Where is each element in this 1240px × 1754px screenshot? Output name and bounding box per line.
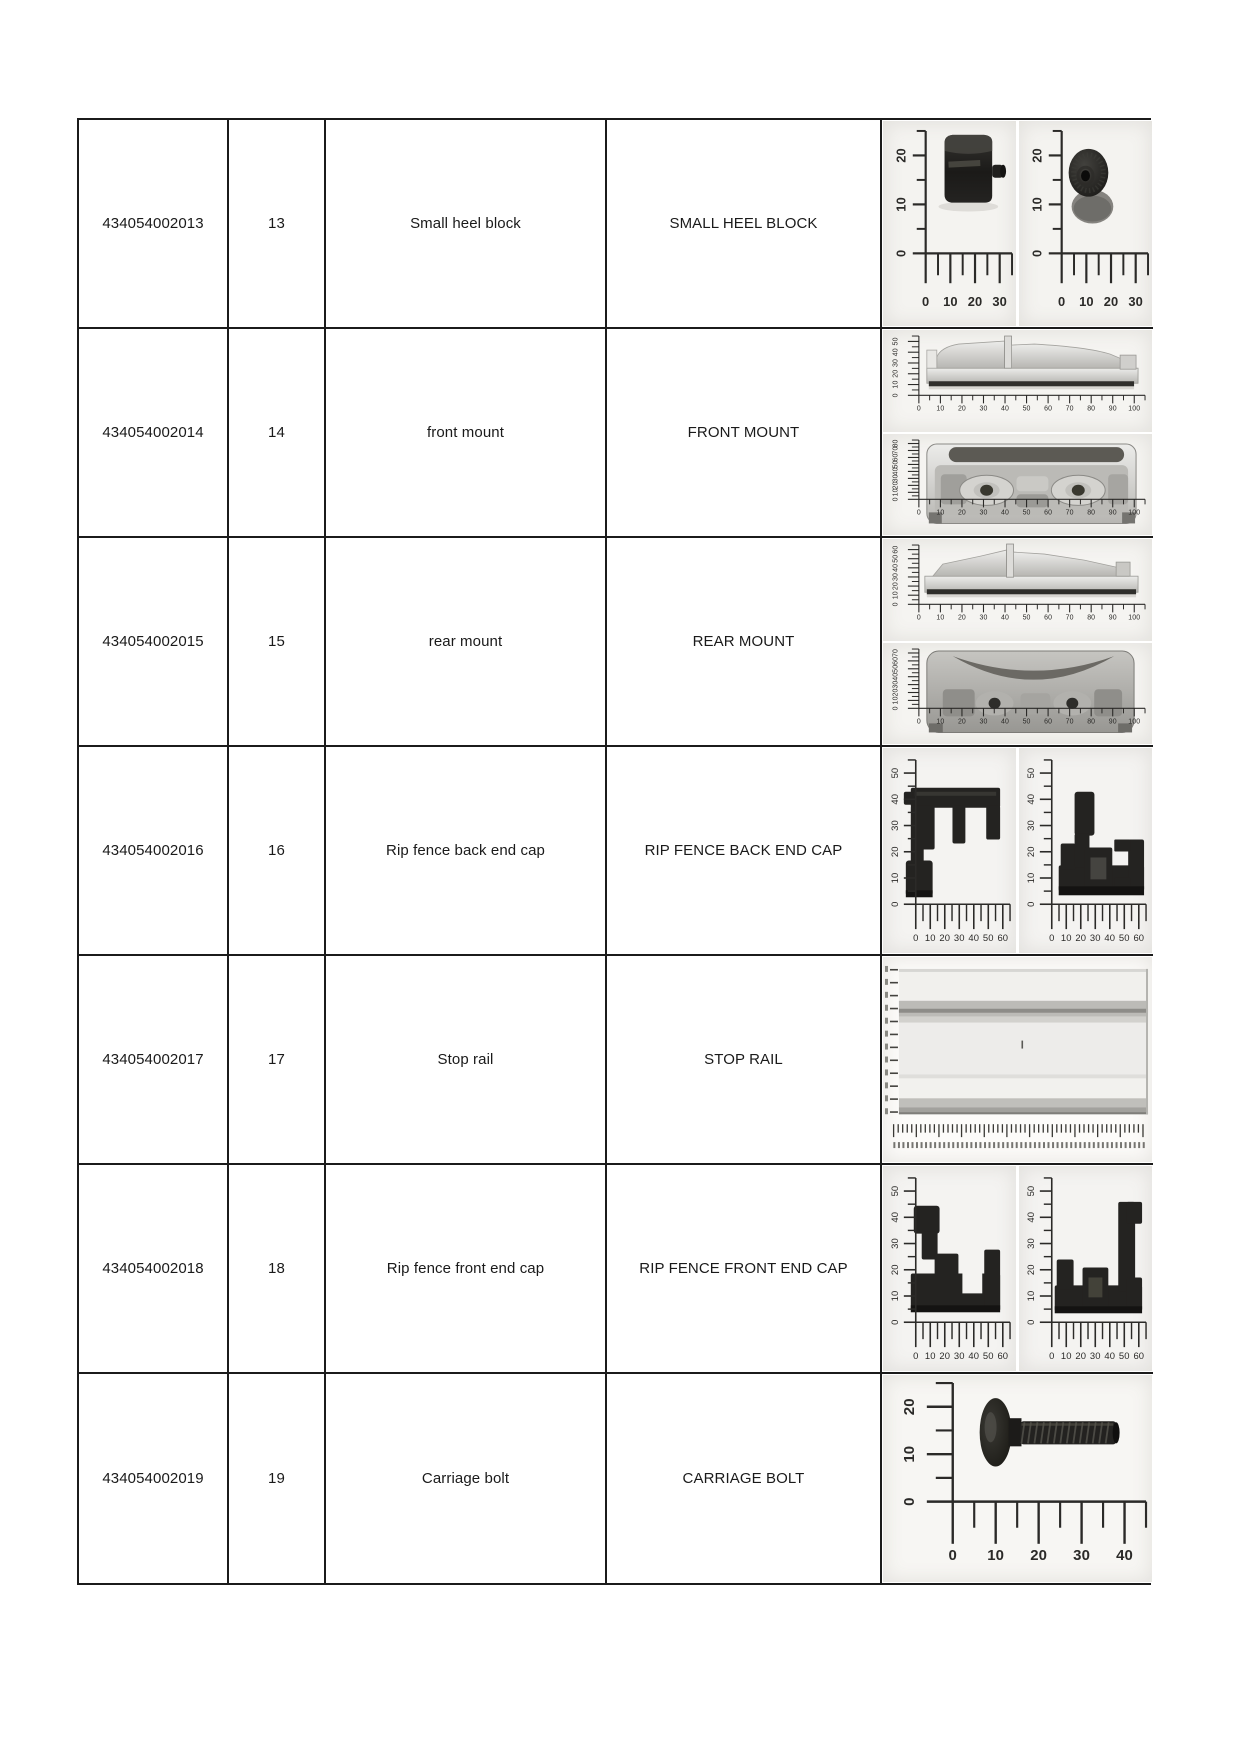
svg-text:60: 60 bbox=[1044, 718, 1052, 725]
svg-text:20: 20 bbox=[958, 405, 966, 412]
part-photo-carriage-bolt: 01020304001020 bbox=[883, 1375, 1152, 1582]
svg-text:20: 20 bbox=[1026, 1264, 1037, 1275]
svg-text:10: 10 bbox=[892, 591, 899, 599]
svg-text:10: 10 bbox=[936, 614, 944, 621]
svg-text:0: 0 bbox=[892, 393, 899, 397]
svg-text:0: 0 bbox=[1049, 933, 1054, 944]
svg-text:30: 30 bbox=[1128, 294, 1143, 309]
part-photo-group: 01020304050607080901000102030405060 0102… bbox=[883, 539, 1152, 744]
svg-text:10: 10 bbox=[892, 381, 899, 389]
svg-text:60: 60 bbox=[1044, 405, 1052, 412]
name-cell: rear mount bbox=[326, 538, 607, 747]
svg-text:50: 50 bbox=[892, 555, 899, 563]
part-photo-group: 01020304001020 bbox=[883, 1375, 1152, 1582]
part-shape bbox=[1069, 149, 1114, 224]
svg-text:10: 10 bbox=[890, 1291, 901, 1302]
index-cell: 15 bbox=[229, 538, 326, 747]
svg-text:0: 0 bbox=[892, 706, 899, 710]
svg-text:10: 10 bbox=[925, 933, 936, 944]
svg-text:0: 0 bbox=[1026, 1320, 1037, 1325]
svg-text:100: 100 bbox=[1128, 405, 1140, 412]
svg-text:10: 10 bbox=[987, 1547, 1004, 1564]
name-caps-cell: STOP RAIL bbox=[607, 956, 882, 1165]
svg-text:30: 30 bbox=[1090, 1351, 1101, 1362]
svg-text:30: 30 bbox=[890, 1238, 901, 1249]
svg-text:50: 50 bbox=[1023, 509, 1031, 516]
part-shape bbox=[925, 544, 1138, 597]
svg-text:30: 30 bbox=[980, 405, 988, 412]
svg-text:10: 10 bbox=[1029, 197, 1044, 212]
svg-text:80: 80 bbox=[1087, 614, 1095, 621]
svg-text:40: 40 bbox=[1116, 1547, 1133, 1564]
svg-text:100: 100 bbox=[1128, 718, 1140, 725]
svg-text:30: 30 bbox=[980, 718, 988, 725]
svg-text:20: 20 bbox=[1075, 1351, 1086, 1362]
index-cell: 18 bbox=[229, 1165, 326, 1374]
svg-text:50: 50 bbox=[892, 664, 899, 672]
svg-text:40: 40 bbox=[1104, 1351, 1115, 1362]
svg-text:80: 80 bbox=[1087, 405, 1095, 412]
svg-text:10: 10 bbox=[1061, 933, 1072, 944]
svg-text:20: 20 bbox=[892, 370, 899, 378]
svg-text:40: 40 bbox=[1026, 1212, 1037, 1223]
part-photo-group: 010203040506001020304050 010203040506001… bbox=[883, 748, 1152, 953]
svg-text:50: 50 bbox=[1026, 1186, 1037, 1197]
part-shape bbox=[1059, 792, 1144, 895]
svg-text:20: 20 bbox=[958, 718, 966, 725]
front-mount-underside-illustration: 010203040506070809010001020304050607080 bbox=[883, 434, 1152, 536]
svg-text:10: 10 bbox=[1061, 1351, 1072, 1362]
index-cell: 16 bbox=[229, 747, 326, 956]
name-caps-cell: REAR MOUNT bbox=[607, 538, 882, 747]
svg-text:60: 60 bbox=[892, 656, 899, 664]
svg-text:30: 30 bbox=[892, 680, 899, 688]
part-shape bbox=[980, 1398, 1120, 1466]
part-number-cell: 434054002017 bbox=[79, 956, 229, 1165]
svg-text:60: 60 bbox=[1044, 614, 1052, 621]
part-number-cell: 434054002014 bbox=[79, 329, 229, 538]
svg-text:20: 20 bbox=[1029, 148, 1044, 163]
name-cell: Small heel block bbox=[326, 120, 607, 329]
part-photo-rear-mount-profile: 01020304050607080901000102030405060 bbox=[883, 539, 1152, 641]
svg-text:90: 90 bbox=[1109, 509, 1117, 516]
svg-text:30: 30 bbox=[892, 359, 899, 367]
svg-text:40: 40 bbox=[1026, 794, 1037, 805]
svg-text:10: 10 bbox=[925, 1351, 936, 1362]
svg-text:0: 0 bbox=[1026, 902, 1037, 907]
svg-text:40: 40 bbox=[1001, 614, 1009, 621]
part-number-cell: 434054002019 bbox=[79, 1374, 229, 1583]
svg-text:0: 0 bbox=[922, 294, 929, 309]
svg-text:20: 20 bbox=[939, 933, 950, 944]
index-cell: 19 bbox=[229, 1374, 326, 1583]
small-heel-block-side-illustration: 010203001020 bbox=[883, 121, 1016, 326]
part-shape bbox=[939, 135, 1006, 212]
svg-text:70: 70 bbox=[1066, 405, 1074, 412]
svg-text:20: 20 bbox=[968, 294, 983, 309]
svg-text:40: 40 bbox=[968, 933, 979, 944]
svg-text:100: 100 bbox=[1128, 614, 1140, 621]
part-image-cell: 01020304001020 bbox=[882, 1374, 1153, 1583]
svg-text:60: 60 bbox=[997, 1351, 1008, 1362]
rip-fence-front-end-cap-inner-illustration: 010203040506001020304050 bbox=[1019, 1166, 1152, 1371]
part-shape bbox=[904, 788, 1000, 897]
svg-text:40: 40 bbox=[1001, 405, 1009, 412]
svg-text:40: 40 bbox=[1001, 718, 1009, 725]
part-photo-rip-fence-front-end-cap-inner: 010203040506001020304050 bbox=[1019, 1166, 1152, 1371]
svg-text:10: 10 bbox=[1026, 1291, 1037, 1302]
svg-text:10: 10 bbox=[890, 873, 901, 884]
svg-text:20: 20 bbox=[958, 509, 966, 516]
svg-text:0: 0 bbox=[1029, 250, 1044, 257]
svg-text:90: 90 bbox=[1109, 614, 1117, 621]
svg-text:10: 10 bbox=[1079, 294, 1094, 309]
svg-text:30: 30 bbox=[980, 509, 988, 516]
svg-text:10: 10 bbox=[936, 718, 944, 725]
part-number-cell: 434054002013 bbox=[79, 120, 229, 329]
ruler-axes: 010203040506001020304050 bbox=[890, 760, 1010, 944]
rear-mount-underside-illustration: 0102030405060708090100010203040506070 bbox=[883, 643, 1152, 745]
name-cell: Stop rail bbox=[326, 956, 607, 1165]
svg-text:50: 50 bbox=[983, 1351, 994, 1362]
svg-text:40: 40 bbox=[890, 794, 901, 805]
svg-text:10: 10 bbox=[1026, 873, 1037, 884]
svg-text:50: 50 bbox=[1023, 405, 1031, 412]
svg-text:50: 50 bbox=[1119, 933, 1130, 944]
part-photo-small-heel-block-top: 010203001020 bbox=[1019, 121, 1152, 326]
svg-text:0: 0 bbox=[917, 405, 921, 412]
index-cell: 14 bbox=[229, 329, 326, 538]
svg-text:20: 20 bbox=[1104, 294, 1119, 309]
svg-text:70: 70 bbox=[892, 648, 899, 656]
svg-text:0: 0 bbox=[913, 933, 918, 944]
svg-text:0: 0 bbox=[1058, 294, 1065, 309]
svg-text:40: 40 bbox=[890, 1212, 901, 1223]
svg-text:50: 50 bbox=[983, 933, 994, 944]
svg-text:40: 40 bbox=[968, 1351, 979, 1362]
svg-text:90: 90 bbox=[1109, 405, 1117, 412]
part-number-cell: 434054002016 bbox=[79, 747, 229, 956]
svg-text:0: 0 bbox=[949, 1547, 957, 1564]
svg-text:40: 40 bbox=[892, 348, 899, 356]
part-photo-group bbox=[883, 957, 1152, 1162]
front-mount-profile-illustration: 010203040506070809010001020304050 bbox=[883, 330, 1152, 432]
name-caps-cell: RIP FENCE BACK END CAP bbox=[607, 747, 882, 956]
svg-text:30: 30 bbox=[1026, 820, 1037, 831]
svg-text:100: 100 bbox=[1128, 509, 1140, 516]
svg-text:0: 0 bbox=[917, 614, 921, 621]
svg-text:80: 80 bbox=[1087, 718, 1095, 725]
svg-text:20: 20 bbox=[1030, 1547, 1047, 1564]
svg-text:40: 40 bbox=[892, 672, 899, 680]
svg-text:30: 30 bbox=[954, 933, 965, 944]
part-image-cell: 010203040506070809010001020304050 010203… bbox=[882, 329, 1153, 538]
part-photo-group: 010203040506001020304050 010203040506001… bbox=[883, 1166, 1152, 1371]
small-heel-block-top-illustration: 010203001020 bbox=[1019, 121, 1152, 326]
part-image-cell: 010203001020 010203001020 bbox=[882, 120, 1153, 329]
svg-text:10: 10 bbox=[936, 509, 944, 516]
part-photo-rip-fence-back-end-cap-outer: 010203040506001020304050 bbox=[883, 748, 1016, 953]
svg-text:0: 0 bbox=[892, 497, 899, 501]
svg-text:60: 60 bbox=[1133, 1351, 1144, 1362]
svg-text:20: 20 bbox=[892, 582, 899, 590]
svg-text:0: 0 bbox=[1049, 1351, 1054, 1362]
svg-text:50: 50 bbox=[1026, 768, 1037, 779]
svg-text:30: 30 bbox=[954, 1351, 965, 1362]
svg-text:10: 10 bbox=[893, 197, 908, 212]
svg-text:60: 60 bbox=[892, 546, 899, 554]
parts-table: 434054002013 13 Small heel block SMALL H… bbox=[77, 118, 1151, 1585]
part-image-cell: 010203040506001020304050 010203040506001… bbox=[882, 1165, 1153, 1374]
svg-text:20: 20 bbox=[901, 1398, 918, 1415]
svg-text:50: 50 bbox=[1119, 1351, 1130, 1362]
svg-text:50: 50 bbox=[1023, 614, 1031, 621]
svg-text:20: 20 bbox=[958, 614, 966, 621]
part-photo-front-mount-underside: 010203040506070809010001020304050607080 bbox=[883, 434, 1152, 536]
svg-text:0: 0 bbox=[893, 250, 908, 257]
part-number-cell: 434054002015 bbox=[79, 538, 229, 747]
svg-text:40: 40 bbox=[892, 564, 899, 572]
part-image-cell bbox=[882, 956, 1153, 1165]
part-photo-group: 010203040506070809010001020304050 010203… bbox=[883, 330, 1152, 535]
svg-text:20: 20 bbox=[939, 1351, 950, 1362]
svg-text:20: 20 bbox=[1026, 846, 1037, 857]
part-photo-stop-rail bbox=[883, 957, 1152, 1162]
svg-text:50: 50 bbox=[890, 1186, 901, 1197]
name-caps-cell: RIP FENCE FRONT END CAP bbox=[607, 1165, 882, 1374]
svg-text:80: 80 bbox=[1087, 509, 1095, 516]
svg-text:10: 10 bbox=[892, 696, 899, 704]
svg-text:70: 70 bbox=[1066, 718, 1074, 725]
index-cell: 13 bbox=[229, 120, 326, 329]
part-photo-front-mount-profile: 010203040506070809010001020304050 bbox=[883, 330, 1152, 432]
rear-mount-profile-illustration: 01020304050607080901000102030405060 bbox=[883, 539, 1152, 641]
part-photo-rear-mount-underside: 0102030405060708090100010203040506070 bbox=[883, 643, 1152, 745]
svg-text:10: 10 bbox=[943, 294, 958, 309]
svg-text:0: 0 bbox=[890, 902, 901, 907]
svg-text:0: 0 bbox=[901, 1497, 918, 1505]
svg-text:50: 50 bbox=[1023, 718, 1031, 725]
part-number-cell: 434054002018 bbox=[79, 1165, 229, 1374]
rip-fence-front-end-cap-outer-illustration: 010203040506001020304050 bbox=[883, 1166, 1016, 1371]
svg-text:50: 50 bbox=[892, 337, 899, 345]
svg-text:20: 20 bbox=[893, 148, 908, 163]
part-photo-rip-fence-back-end-cap-inner: 010203040506001020304050 bbox=[1019, 748, 1152, 953]
svg-text:30: 30 bbox=[1090, 933, 1101, 944]
svg-text:20: 20 bbox=[892, 688, 899, 696]
svg-text:30: 30 bbox=[890, 820, 901, 831]
name-caps-cell: CARRIAGE BOLT bbox=[607, 1374, 882, 1583]
svg-text:80: 80 bbox=[892, 439, 899, 447]
svg-text:60: 60 bbox=[1044, 509, 1052, 516]
name-cell: Carriage bolt bbox=[326, 1374, 607, 1583]
svg-text:40: 40 bbox=[1001, 509, 1009, 516]
name-cell: Rip fence back end cap bbox=[326, 747, 607, 956]
rip-fence-back-end-cap-outer-illustration: 010203040506001020304050 bbox=[883, 748, 1016, 953]
part-photo-group: 010203001020 010203001020 bbox=[883, 121, 1152, 326]
svg-text:0: 0 bbox=[892, 602, 899, 606]
part-photo-rip-fence-front-end-cap-outer: 010203040506001020304050 bbox=[883, 1166, 1016, 1371]
svg-text:0: 0 bbox=[890, 1320, 901, 1325]
svg-text:30: 30 bbox=[980, 614, 988, 621]
svg-text:60: 60 bbox=[997, 933, 1008, 944]
part-shape bbox=[885, 966, 1148, 1148]
svg-text:0: 0 bbox=[917, 509, 921, 516]
svg-text:30: 30 bbox=[892, 573, 899, 581]
svg-text:20: 20 bbox=[890, 846, 901, 857]
name-cell: front mount bbox=[326, 329, 607, 538]
svg-text:20: 20 bbox=[890, 1264, 901, 1275]
svg-text:30: 30 bbox=[1073, 1547, 1090, 1564]
svg-text:30: 30 bbox=[1026, 1238, 1037, 1249]
part-image-cell: 01020304050607080901000102030405060 0102… bbox=[882, 538, 1153, 747]
svg-text:20: 20 bbox=[1075, 933, 1086, 944]
name-caps-cell: FRONT MOUNT bbox=[607, 329, 882, 538]
part-image-cell: 010203040506001020304050 010203040506001… bbox=[882, 747, 1153, 956]
index-cell: 17 bbox=[229, 956, 326, 1165]
document-page: 434054002013 13 Small heel block SMALL H… bbox=[0, 0, 1240, 1754]
part-shape bbox=[927, 336, 1138, 389]
svg-text:10: 10 bbox=[901, 1446, 918, 1463]
svg-text:90: 90 bbox=[1109, 718, 1117, 725]
svg-text:60: 60 bbox=[1133, 933, 1144, 944]
part-shape bbox=[1055, 1202, 1142, 1313]
part-shape bbox=[911, 1206, 1000, 1312]
name-caps-cell: SMALL HEEL BLOCK bbox=[607, 120, 882, 329]
svg-text:10: 10 bbox=[936, 405, 944, 412]
svg-text:40: 40 bbox=[1104, 933, 1115, 944]
ruler-axes: 01020304001020 bbox=[901, 1383, 1146, 1564]
svg-text:70: 70 bbox=[1066, 614, 1074, 621]
carriage-bolt-illustration: 01020304001020 bbox=[883, 1375, 1152, 1582]
name-cell: Rip fence front end cap bbox=[326, 1165, 607, 1374]
svg-text:50: 50 bbox=[890, 768, 901, 779]
part-photo-small-heel-block-side: 010203001020 bbox=[883, 121, 1016, 326]
svg-text:0: 0 bbox=[917, 718, 921, 725]
svg-text:30: 30 bbox=[992, 294, 1007, 309]
stop-rail-illustration bbox=[883, 957, 1152, 1162]
rip-fence-back-end-cap-inner-illustration: 010203040506001020304050 bbox=[1019, 748, 1152, 953]
svg-text:0: 0 bbox=[913, 1351, 918, 1362]
svg-text:70: 70 bbox=[1066, 509, 1074, 516]
